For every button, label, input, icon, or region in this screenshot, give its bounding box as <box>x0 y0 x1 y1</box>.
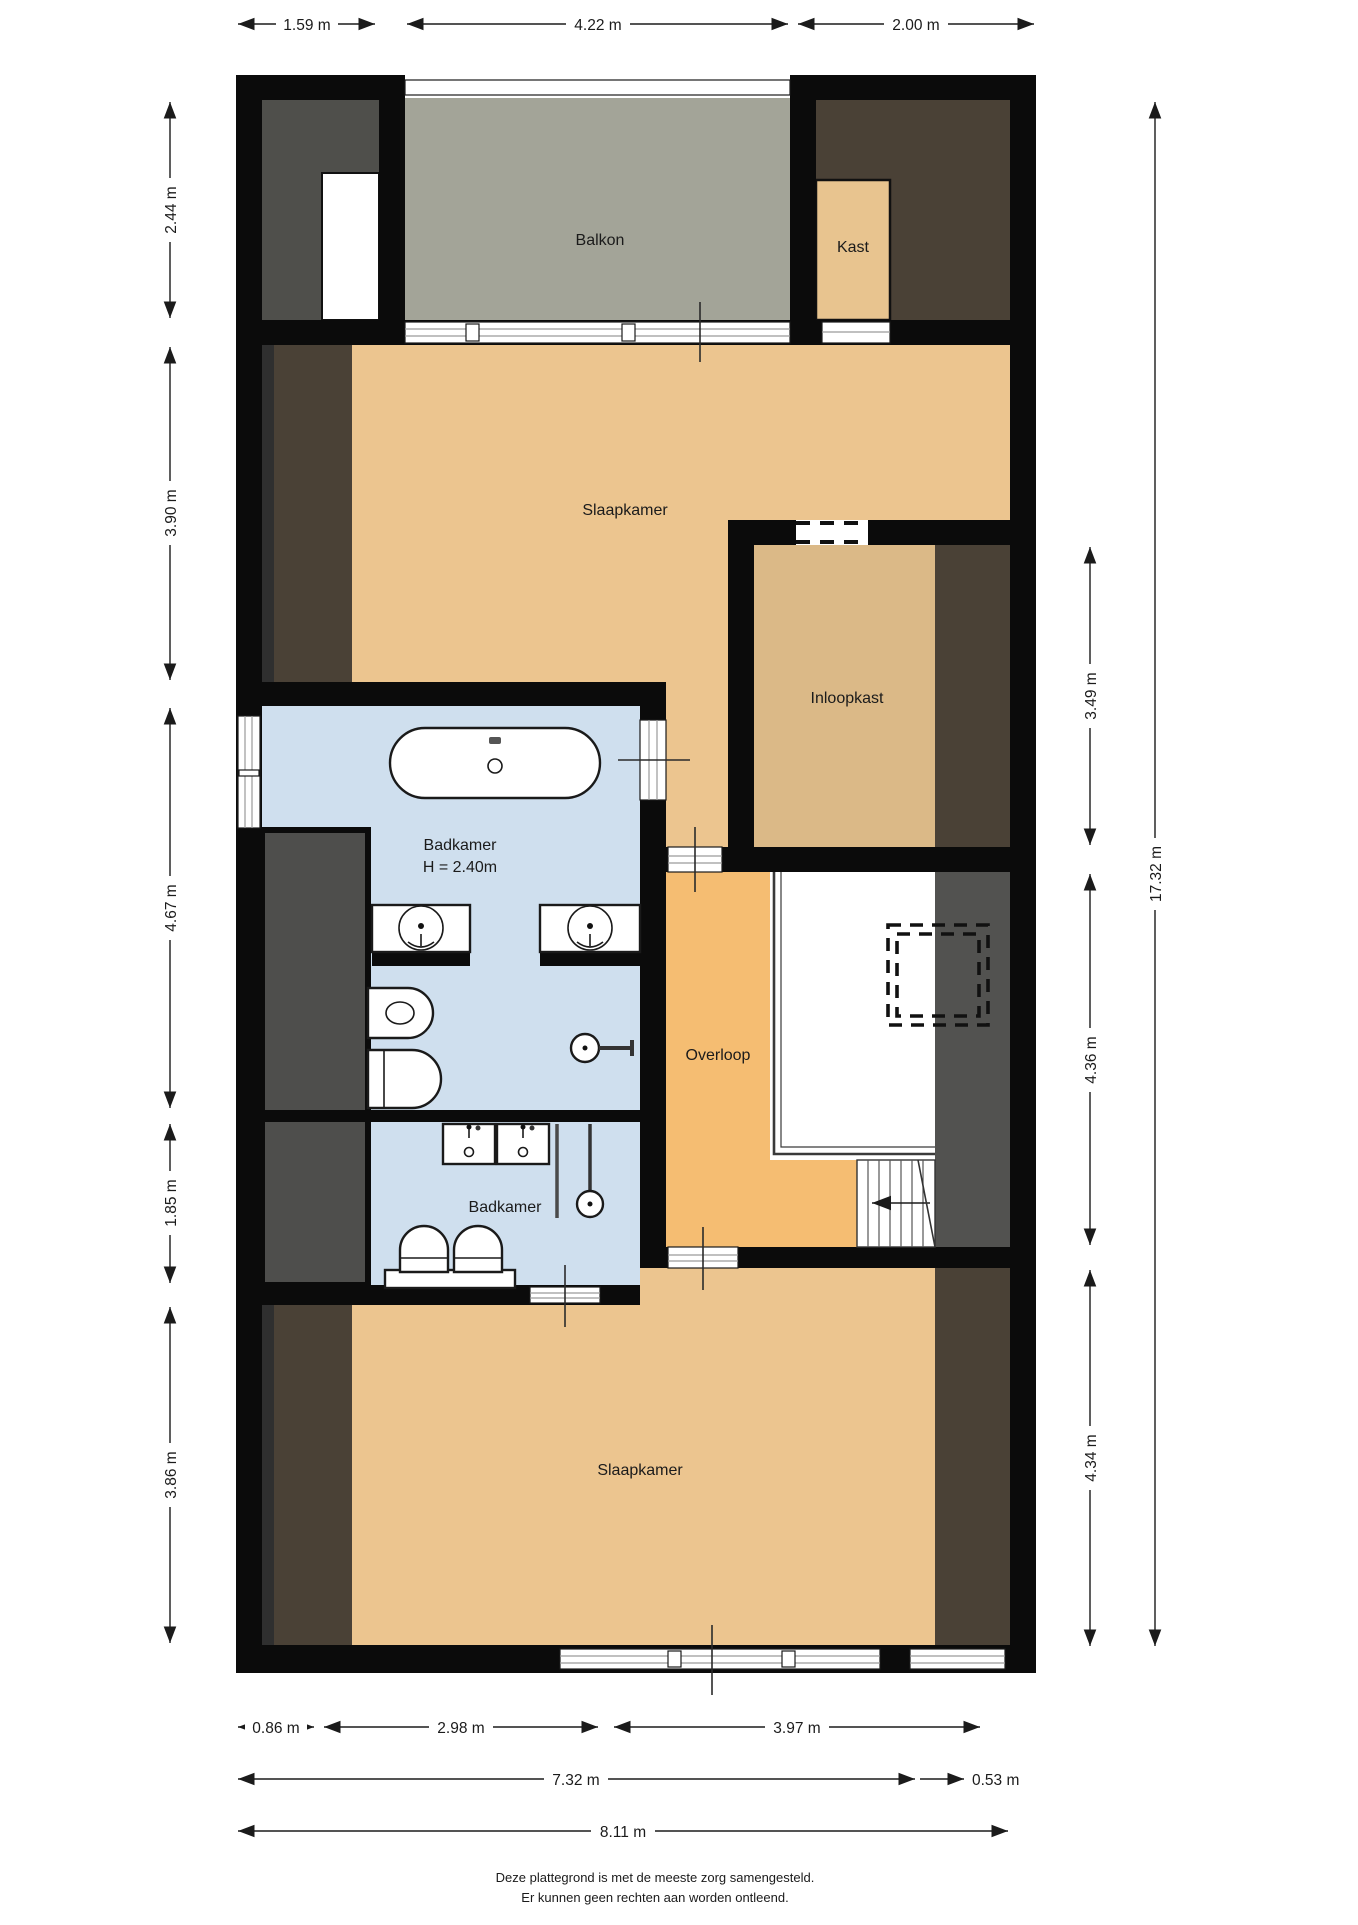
balkon-railing <box>405 80 790 95</box>
roof-strip-right-lower <box>935 1268 1010 1645</box>
dim-left-4: 3.86 m <box>163 1451 180 1498</box>
label-badkamer-main: Badkamer <box>424 837 498 854</box>
dim-right-2: 4.34 m <box>1083 1434 1100 1481</box>
eaves-strip-bottom <box>274 1305 352 1645</box>
dim-bottom1-2: 3.97 m <box>773 1720 820 1737</box>
washbasin-icon <box>372 905 470 952</box>
bidet-icon <box>368 988 433 1038</box>
dim-right-1: 4.36 m <box>1083 1036 1100 1083</box>
dim-top-2: 2.00 m <box>892 17 939 34</box>
dim-top-0: 1.59 m <box>283 17 330 34</box>
window-badkamer <box>238 716 260 828</box>
label-slaapkamer-bottom: Slaapkamer <box>597 1462 683 1479</box>
floorplan-page: Balkon Kast Slaapkamer Inloopkast Badkam… <box>0 0 1358 1920</box>
washbasin-icon <box>443 1124 495 1164</box>
label-inloopkast: Inloopkast <box>811 690 884 707</box>
roof-strip-right-mid <box>935 858 1010 1268</box>
roof-strip-right-upper <box>935 545 1010 858</box>
room-balkon <box>405 98 790 320</box>
label-balkon: Balkon <box>576 232 625 249</box>
dim-left-3: 1.85 m <box>163 1179 180 1226</box>
label-badkamer-height: H = 2.40m <box>423 859 497 876</box>
footer-line2: Er kunnen geen rechten aan worden ontlee… <box>521 1890 788 1905</box>
washbasin-icon <box>497 1124 549 1164</box>
dim-bottom1-0: 0.86 m <box>252 1720 299 1737</box>
floorplan-drawing: Balkon Kast Slaapkamer Inloopkast Badkam… <box>0 0 1358 1920</box>
dim-top-1: 4.22 m <box>574 17 621 34</box>
dim-bottom1-1: 2.98 m <box>437 1720 484 1737</box>
bathtub-icon <box>390 728 600 798</box>
dim-bottom2-1: 0.53 m <box>972 1772 1019 1789</box>
dim-right-total: 17.32 m <box>1148 846 1165 902</box>
eaves-sliver-top <box>262 345 274 682</box>
door-inloopkast <box>796 520 868 545</box>
roof-notch <box>322 173 379 320</box>
eaves-strip-top <box>274 345 352 682</box>
label-badkamer-small: Badkamer <box>469 1199 543 1216</box>
eaves-sliver-bottom <box>262 1305 274 1645</box>
stairs-icon <box>857 1160 935 1247</box>
dim-left-0: 2.44 m <box>163 186 180 233</box>
dim-right-0: 3.49 m <box>1083 672 1100 719</box>
dim-left-2: 4.67 m <box>163 884 180 931</box>
door-kast <box>822 322 890 343</box>
label-slaapkamer-top: Slaapkamer <box>582 502 668 519</box>
dim-bottom2-0: 7.32 m <box>552 1772 599 1789</box>
washbasin-icon <box>540 905 640 952</box>
label-overloop: Overloop <box>686 1047 751 1064</box>
room-slaapkamer-bottom <box>262 1268 935 1645</box>
toilet-icon <box>368 1050 441 1108</box>
dim-bottom3: 8.11 m <box>600 1824 646 1841</box>
footer-line1: Deze plattegrond is met de meeste zorg s… <box>496 1870 815 1885</box>
label-kast: Kast <box>837 239 870 256</box>
footer: Deze plattegrond is met de meeste zorg s… <box>496 1870 815 1905</box>
dim-left-1: 3.90 m <box>163 489 180 536</box>
roof-block-bathroom <box>262 830 368 1285</box>
